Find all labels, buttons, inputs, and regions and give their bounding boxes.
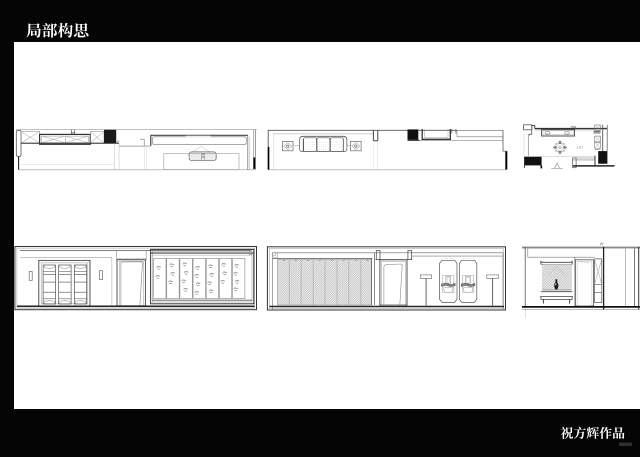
svg-text:1.07: 1.07	[576, 146, 583, 150]
